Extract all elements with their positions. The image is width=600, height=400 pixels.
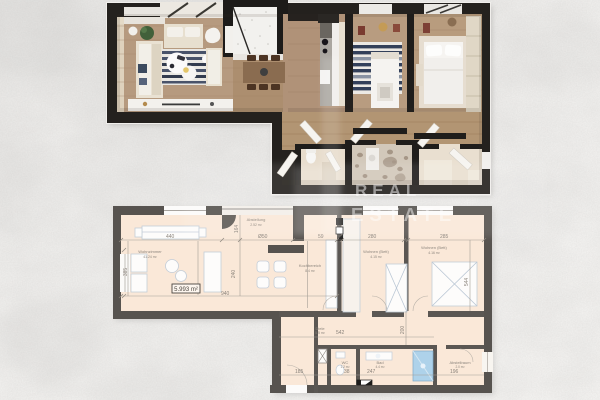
svg-text:247: 247 [367, 369, 376, 375]
svg-text:41.24 m²: 41.24 m² [143, 255, 157, 259]
svg-text:ESTATE: ESTATE [351, 204, 457, 225]
svg-text:38: 38 [344, 369, 350, 375]
svg-text:8.4 m²: 8.4 m² [305, 269, 315, 273]
svg-text:200: 200 [400, 326, 406, 335]
svg-text:Wohnen (Bett): Wohnen (Bett) [421, 245, 447, 250]
svg-text:440: 440 [166, 234, 175, 240]
svg-text:REAL: REAL [355, 181, 421, 200]
svg-text:Kochbereich: Kochbereich [299, 263, 321, 268]
svg-text:2.0 m²: 2.0 m² [455, 365, 464, 369]
svg-text:544: 544 [464, 278, 470, 287]
svg-text:185: 185 [295, 369, 304, 375]
svg-text:940: 940 [221, 291, 230, 297]
svg-text:4.4 m²: 4.4 m² [375, 365, 384, 369]
svg-text:240: 240 [231, 270, 237, 279]
svg-text:Wohnzimmer: Wohnzimmer [138, 249, 162, 254]
svg-text:196: 196 [450, 369, 459, 375]
svg-text:385: 385 [123, 268, 129, 277]
svg-text:1.2 m²: 1.2 m² [340, 365, 349, 369]
svg-text:Wohnen (Bett): Wohnen (Bett) [363, 249, 389, 254]
svg-text:542: 542 [336, 330, 345, 336]
svg-text:5.993 m²: 5.993 m² [174, 287, 198, 293]
svg-text:4.15 m²: 4.15 m² [370, 255, 382, 259]
svg-text:4.16 m²: 4.16 m² [428, 251, 440, 255]
svg-text:5.5 m²: 5.5 m² [315, 331, 325, 335]
